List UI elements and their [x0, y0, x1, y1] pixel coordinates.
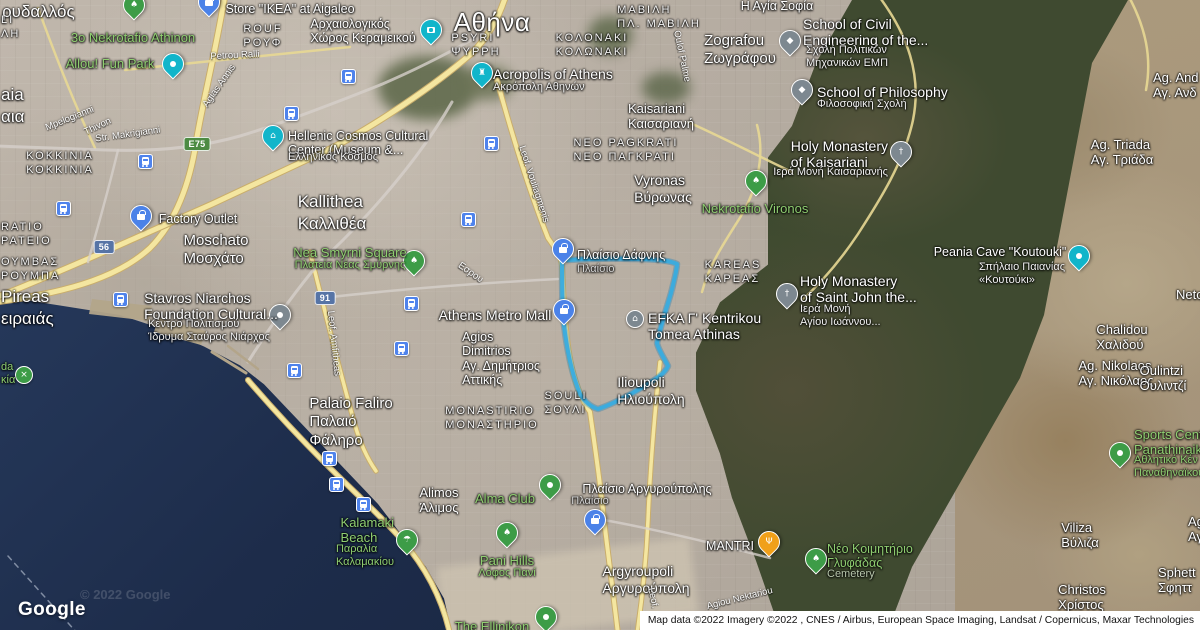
peania-cave-pin[interactable]	[1063, 240, 1094, 271]
pin-glyph-wrap: ◆	[792, 80, 812, 100]
label-the-ellinikon: The Ellinikon	[455, 620, 529, 630]
label-peania-cave-koutouki: Peania Cave "Koutouki"	[934, 245, 1067, 259]
pin-glyph-wrap: ⌂	[263, 126, 283, 146]
label-ag-triada: Ag. TriadaΑγ. Τριάδα	[1091, 137, 1153, 168]
label-line: Agiou Nektariou	[706, 586, 774, 613]
label-line: ΜΟΝΑΣΤΗΡΙΟ	[445, 418, 538, 432]
route-shield-e75: E75	[184, 137, 211, 151]
transit-station-icon[interactable]	[287, 363, 302, 378]
restaurant-icon: Ψ	[765, 538, 772, 547]
label-line: Λόφος Πανί	[478, 567, 535, 580]
camera-icon	[427, 27, 435, 33]
label-factory-outlet: Factory Outlet	[159, 212, 238, 226]
label-line: Βύλιζα	[1061, 535, 1099, 550]
google-logo[interactable]: Google	[18, 599, 86, 621]
label-line: Μηχανικών ΕΜΠ	[806, 57, 888, 70]
tree-icon: ♠	[812, 555, 820, 564]
train-icon	[408, 299, 415, 307]
dot-icon	[1076, 253, 1082, 259]
label-leof-vouliagmenis: Leof. Vouliagmenis	[515, 145, 550, 225]
bag-icon	[591, 518, 599, 525]
label-ag: AgΑγ	[1188, 514, 1200, 545]
label-line: Kalamaki	[341, 516, 394, 531]
label-line: Factory Outlet	[159, 212, 238, 226]
monastery-kaisariani-pin[interactable]: †	[885, 136, 916, 167]
label-line: Φιλοσοφική Σχολή	[817, 98, 907, 111]
label-line: Καλλιθέα	[298, 213, 367, 235]
label-line: Leof. Vouliagmenis	[515, 145, 550, 225]
transit-station-icon[interactable]	[484, 136, 499, 151]
museum-icon: ⌂	[270, 132, 276, 141]
dot-icon	[543, 614, 549, 620]
label-line: 3ο Nekrotafio Athinon	[71, 31, 195, 46]
label-line: Ilioupoli	[617, 374, 684, 391]
label-line: Ζωγράφου	[704, 50, 776, 68]
label-oulintzi: OulintziΟυλιντζί	[1140, 363, 1187, 394]
train-icon	[333, 480, 340, 488]
label-line: Παραλία	[336, 543, 394, 556]
label-line: Viliza	[1061, 520, 1099, 535]
label-line: Kallithea	[298, 191, 367, 213]
label-line: Σφηττ	[1158, 580, 1196, 595]
label-line: Ηλιούπολη	[617, 391, 684, 408]
label-kaisariani: KaisarianiΚαισαριανή	[628, 101, 694, 132]
bag-icon	[205, 0, 213, 6]
bag-icon	[560, 308, 568, 315]
label-line: Παλαιό	[309, 413, 392, 431]
label-line: Βύρωνας	[634, 189, 692, 206]
label-line: ΜΑΒΙΛΗ	[617, 3, 701, 17]
label-line: Athens Metro Mall	[439, 308, 552, 324]
label-vyronas: VyronasΒύρωνας	[634, 172, 692, 206]
pin-glyph-wrap: ◆	[780, 31, 800, 51]
label-line: Ουλιντζί	[1140, 378, 1187, 393]
label-line: ΠΛ. ΜΑΒΙΛΗ	[617, 17, 701, 31]
label-μαβιλη: ΜΑΒΙΛΗΠΛ. ΜΑΒΙΛΗ	[617, 3, 701, 32]
label-chalidou: ChalidouΧαλιδού	[1096, 322, 1147, 353]
label-line: «Κουτούκι»	[979, 274, 1065, 287]
label-athens-metro-mall: Athens Metro Mall	[439, 308, 552, 324]
label-rouf: ROUFΡΟΥΦ	[243, 22, 282, 51]
school-civil-engineering-pin[interactable]: ◆	[774, 25, 805, 56]
label-oulof-palme: Oulof Palme	[670, 30, 691, 83]
plaisio-dafnis-pin[interactable]	[547, 233, 578, 264]
label-line: Ακρόπολη Αθηνών	[493, 81, 585, 94]
label-line: Αγ. Δημήτριος	[462, 359, 540, 373]
label-line: Sports Cent	[1134, 428, 1200, 443]
label-nekrotafio-vironos: Nekrotafio Vironos	[702, 202, 809, 217]
label-alimos: AlimosΆλιμος	[419, 485, 458, 516]
pin-glyph-wrap: †	[777, 284, 797, 304]
label-line: Ελληνικός Κόσμος	[288, 151, 378, 164]
athens-metro-mall-pin[interactable]	[548, 294, 579, 325]
label-line: Zografou	[704, 32, 776, 50]
label-line: Dimitrios	[462, 344, 540, 358]
nekrotafio-athinon-pin[interactable]: ♠	[118, 0, 149, 21]
label-line: Ίδρυμα Σταύρος Νιάρχος	[148, 331, 270, 344]
label-νέο-κοιμητήριο: Νέο ΚοιμητήριοΓλυφάδας	[827, 542, 913, 571]
dot-icon	[170, 61, 176, 67]
label-line: Σπήλαιο Παιανίας	[979, 261, 1065, 274]
bag-icon	[137, 214, 145, 221]
label-line: Stavros Niarchos	[144, 291, 278, 307]
castle-icon: ♜	[478, 69, 486, 78]
tree-icon: ♠	[410, 257, 418, 266]
train-icon	[465, 215, 472, 223]
label-ελληνικός-κόσμος: Ελληνικός Κόσμος	[288, 151, 378, 164]
label-3ο-nekrotafio-athinon: 3ο Nekrotafio Athinon	[71, 31, 195, 46]
label-line: ΚΟΛΟΝΑΚΙ	[556, 31, 629, 45]
label-line: Alma Club	[475, 492, 535, 507]
transit-station-icon[interactable]	[394, 341, 409, 356]
label-line: Alimos	[419, 485, 458, 500]
train-icon	[345, 72, 352, 80]
label-line: Ag. And	[1153, 70, 1199, 85]
kalamaki-beach-pin[interactable]: ☂	[391, 524, 422, 555]
pin-glyph-wrap: ♠	[806, 549, 826, 569]
label-line: Chalidou	[1096, 322, 1147, 337]
pin-glyph-wrap	[1110, 443, 1130, 463]
label-line: Tomea Athinas	[648, 327, 761, 343]
ikea-store-pin[interactable]	[193, 0, 224, 18]
transit-station-icon[interactable]	[341, 69, 356, 84]
train-icon	[488, 139, 495, 147]
label-kallithea: KallitheaΚαλλιθέα	[298, 191, 367, 235]
train-icon	[142, 157, 149, 165]
label-neto: Neto	[1176, 287, 1200, 302]
transit-station-icon[interactable]	[356, 497, 371, 512]
label-line: αια	[1, 106, 24, 128]
train-icon	[326, 454, 333, 462]
label-κέντρο-πολιτισμού: Κέντρο ΠολιτισμούΊδρυμα Σταύρος Νιάρχος	[148, 318, 270, 343]
label-line: Πλαίσιο	[571, 495, 608, 508]
label-line: MANTRI	[706, 539, 754, 553]
label-νεο-pagkrati: ΝΕΟ PAGKRATIΝΕΟ ΠΑΓΚΡΑΤΙ	[574, 136, 679, 165]
label-line: Καισαριανή	[628, 116, 694, 131]
route-shield-91: 91	[315, 291, 336, 305]
label-line: Αγ. Ανδ	[1153, 85, 1199, 100]
bag-icon	[559, 247, 567, 254]
label-efka-γ-kentrikou: EFKA Γ' KentrikouTomea Athinas	[648, 311, 761, 343]
pin-glyph-wrap	[163, 54, 183, 74]
label-monastirio: MONASTIRIOΜΟΝΑΣΤΗΡΙΟ	[445, 404, 538, 433]
label-store-ikea-at-aigaleo: Store "IKEA" at Aigaleo	[225, 2, 354, 16]
label-ιερά-μονή-καισαριανής: Ιερά Μονή Καισαριανής	[773, 166, 888, 179]
label-αρχαιολογικός: ΑρχαιολογικόςΧώρος Κεραμεικού	[310, 17, 415, 46]
label-line: ΟΥΜΒΑΣ	[1, 255, 60, 269]
label-line: Κέντρο Πολιτισμού	[148, 318, 270, 331]
dot-icon	[547, 482, 553, 488]
label-line: Christos	[1058, 582, 1106, 597]
nekrotafio-vironos-pin[interactable]: ♠	[740, 165, 771, 196]
overlay-layer: ρυδαλλόςLIΛΗaiaαια3ο Nekrotafio AthinonA…	[0, 0, 1200, 630]
label-moschato: MoschatoΜοσχάτο	[183, 232, 248, 269]
label-line: Πλατεία Νέας Σμύρνης	[295, 259, 406, 272]
label-line: Agios	[462, 330, 540, 344]
grad-cap-icon: ◆	[799, 86, 806, 95]
factory-outlet-pin[interactable]	[125, 200, 156, 231]
pin-glyph-wrap	[131, 206, 151, 226]
label-line: ΚΟΚΚΙΝΙΑ	[26, 163, 94, 177]
label-line: Χαλιδού	[1096, 337, 1147, 352]
sports-center-panathinaikos-pin[interactable]	[1104, 437, 1135, 468]
label-line: Agias Annis	[201, 63, 238, 110]
label-line: Σχολή Πολιτικών	[806, 44, 888, 57]
label-line: Πλαίσιο Δάφνης	[577, 248, 665, 262]
train-icon	[117, 295, 124, 303]
pin-glyph-wrap: ♠	[124, 0, 144, 15]
label-ilioupoli: IlioupoliΗλιούπολη	[617, 374, 684, 408]
label-agiou-nektariou: Agiou Nektariou	[706, 586, 774, 613]
pin-glyph-wrap	[199, 0, 219, 12]
label-zografou: ZografouΖωγράφου	[704, 32, 776, 69]
label-line: ΛΗ	[1, 27, 20, 41]
tree-icon: ♠	[503, 529, 511, 538]
park-tools-icon[interactable]: ×	[15, 366, 33, 384]
label-line: Αρχαιολογικός	[310, 17, 415, 31]
label-ακρόπολη-αθηνών: Ακρόπολη Αθηνών	[493, 81, 585, 94]
label-line: Holy Monastery	[800, 274, 917, 290]
pin-glyph-wrap: ♠	[404, 251, 424, 271]
label-line: Αγ. Τριάδα	[1091, 152, 1153, 167]
label-line: ΝΕΟ PAGKRATI	[574, 136, 679, 150]
label-παραλία: ΠαραλίαΚαλαμακίου	[336, 543, 394, 568]
label-line: Ag	[1188, 514, 1200, 529]
label-line: Η Αγία Σοφία	[741, 0, 813, 13]
label-line: aia	[1, 84, 24, 106]
label-li: LIΛΗ	[1, 13, 20, 42]
label-agias-annis: Agias Annis	[201, 63, 238, 110]
label-line: Vyronas	[634, 172, 692, 189]
transit-station-icon[interactable]	[284, 106, 299, 121]
label-line: ΨΥΡΡΗ	[451, 45, 500, 59]
label-line: Peania Cave "Koutouki"	[934, 245, 1067, 259]
label-souli: SOULIΣΟΥΛΙ	[544, 389, 587, 418]
label-η-αγία-σοφία: Η Αγία Σοφία	[741, 0, 813, 13]
grad-cap-icon: ◆	[787, 37, 794, 46]
label-line: LI	[1, 13, 20, 27]
label-line: SOULI	[544, 389, 587, 403]
label-line: Νέο Κοιμητήριο	[827, 542, 913, 556]
transit-station-icon[interactable]	[461, 212, 476, 227]
label-line: ΡΟΥΜΠΑ	[1, 269, 60, 283]
pin-glyph-wrap	[585, 510, 605, 530]
pin-glyph-wrap	[554, 300, 574, 320]
attribution-bar: Map data ©2022 Imagery ©2022 , CNES / Ai…	[640, 611, 1200, 630]
label-line: ΣΟΥΛΙ	[544, 403, 587, 417]
label-φιλοσοφική-σχολή: Φιλοσοφική Σχολή	[817, 98, 907, 111]
label-πλαίσιο: Πλαίσιο	[571, 495, 608, 508]
label-line: MONASTIRIO	[445, 404, 538, 418]
label-line: Moschato	[183, 232, 248, 250]
label-line: Άλιμος	[419, 500, 458, 515]
label-line: Φάληρο	[309, 432, 392, 450]
tree-icon: ♠	[130, 0, 138, 9]
label-σχολή-πολιτικών: Σχολή ΠολιτικώνΜηχανικών ΕΜΠ	[806, 44, 888, 69]
label-line: Argyroupoli	[602, 563, 689, 580]
label-line: ΝΕΟ ΠΑΓΚΡΑΤΙ	[574, 150, 679, 164]
label-ιερά-μονή: Ιερά ΜονήΑγίου Ιωάννου...	[800, 303, 881, 328]
pin-glyph-wrap: ☂	[397, 530, 417, 550]
label-line: Εσρου	[455, 261, 484, 286]
label-line: ΡΑΤΕΙΟ	[1, 234, 52, 248]
label-σπήλαιο-παιανίας: Σπήλαιο Παιανίας«Κουτούκι»	[979, 261, 1065, 286]
label-line: Ιερά Μονή Καισαριανής	[773, 166, 888, 179]
label-mantri: MANTRI	[706, 539, 754, 553]
label-line: Πλαίσιο	[577, 263, 614, 276]
label-kalamaki: KalamakiBeach	[341, 516, 394, 546]
label-viliza: VilizaΒύλιζα	[1061, 520, 1099, 551]
label-alma-club: Alma Club	[475, 492, 535, 507]
train-icon	[360, 500, 367, 508]
train-icon	[60, 204, 67, 212]
label-line: Store "IKEA" at Aigaleo	[225, 2, 354, 16]
label-aia: aiaαια	[1, 84, 24, 128]
efka-building-icon[interactable]: ⌂	[626, 310, 644, 328]
alma-club-pin[interactable]	[534, 469, 565, 500]
label-line: da	[1, 361, 15, 374]
pin-glyph-wrap: ♜	[472, 63, 492, 83]
school-philosophy-pin[interactable]: ◆	[786, 74, 817, 105]
umbrella-icon: ☂	[403, 536, 411, 545]
label-line: Cemetery	[827, 568, 875, 581]
train-icon	[398, 344, 405, 352]
building-icon: ⌂	[632, 315, 638, 324]
the-ellinikon-pin[interactable]	[530, 601, 561, 630]
tools-icon: ×	[20, 371, 28, 380]
sea-watermark: © 2022 Google	[80, 587, 171, 602]
label-line: κία	[1, 374, 15, 387]
label-line: ΚΟΛΩΝΑΚΙ	[556, 45, 629, 59]
label-line: ΚΑΡΕΑΣ	[705, 272, 762, 286]
label-πλαίσιο-δάφνης: Πλαίσιο Δάφνης	[577, 248, 665, 262]
pin-glyph-wrap	[421, 20, 441, 40]
label-line: Neto	[1176, 287, 1200, 302]
label-line: Ιερά Μονή	[800, 303, 881, 316]
label-line: ΡΟΥΦ	[243, 36, 282, 50]
pin-glyph-wrap: Ψ	[759, 532, 779, 552]
label-εσρου: Εσρου	[455, 261, 484, 286]
label-line: Allou! Fun Park	[66, 57, 155, 72]
label-sphett: SphettΣφηττ	[1158, 565, 1196, 596]
label-palaio-faliro: Palaio FaliroΠαλαιόΦάληρο	[309, 395, 392, 450]
label-petrou-ralli: Petrou Ralli	[210, 50, 260, 63]
label-line: Sphett	[1158, 565, 1196, 580]
label-line: Αγ	[1188, 529, 1200, 544]
label-line: Αγίου Ιωάννου...	[800, 316, 881, 329]
label-holy-monastery: Holy Monasteryof Saint John the...	[800, 274, 917, 306]
pin-glyph-wrap: ♠	[746, 171, 766, 191]
train-icon	[288, 109, 295, 117]
pin-glyph-wrap: ♠	[497, 523, 517, 543]
tree-icon: ♠	[752, 177, 760, 186]
label-ratio: RATIOΡΑΤΕΙΟ	[1, 220, 52, 249]
label-line: Oulof Palme	[670, 30, 691, 83]
label-line: Hellenic Cosmos Cultural	[288, 129, 428, 143]
pin-glyph-wrap: †	[891, 142, 911, 162]
label-line: Holy Monastery	[791, 139, 888, 155]
label-cemetery: Cemetery	[827, 568, 875, 581]
mantri-restaurant-pin[interactable]: Ψ	[753, 526, 784, 557]
route-shield-56: 56	[94, 240, 115, 254]
label-line: Ag. Triada	[1091, 137, 1153, 152]
label-κοκκινια: ΚΟΚΚΙΝΙΑΚΟΚΚΙΝΙΑ	[26, 149, 94, 178]
kerameikos-site-pin[interactable]	[415, 14, 446, 45]
cross-icon: †	[785, 290, 790, 299]
label-line: Μοσχάτο	[183, 250, 248, 268]
label-κολονακι: ΚΟΛΟΝΑΚΙΚΟΛΩΝΑΚΙ	[556, 31, 629, 60]
label-leof-amfitheas: Leof. Amfitheas	[324, 310, 342, 376]
label-πλαίσιο: Πλαίσιο	[577, 263, 614, 276]
label-allou-fun-park: Allou! Fun Park	[66, 57, 155, 72]
label-agios: AgiosDimitriosΑγ. ΔημήτριοςΑττικής	[462, 330, 540, 387]
label-line: Leof. Amfitheas	[324, 310, 342, 376]
label-line: Αθλητικό Κέν	[1134, 454, 1200, 467]
label-line: Oulintzi	[1140, 363, 1187, 378]
label-line: Petrou Ralli	[210, 50, 260, 63]
label-line: EFKA Γ' Kentrikou	[648, 311, 761, 327]
pani-hills-pin[interactable]: ♠	[491, 517, 522, 548]
label-line: Χώρος Κεραμεικού	[310, 31, 415, 45]
transit-station-icon[interactable]	[56, 201, 71, 216]
plaisio-argyroupolis-pin[interactable]	[579, 504, 610, 535]
label-line: RATIO	[1, 220, 52, 234]
label-line: ειραιάς	[1, 308, 54, 330]
label-πλατεία-νέας-σμύρνης: Πλατεία Νέας Σμύρνης	[295, 259, 406, 272]
transit-station-icon[interactable]	[404, 296, 419, 311]
label-line: Nekrotafio Vironos	[702, 202, 809, 217]
label-line: Kaisariani	[628, 101, 694, 116]
label-line: School of Civil	[803, 17, 928, 33]
label-line: Παναθηναϊκού	[1134, 467, 1200, 480]
label-line: KAREAS	[705, 258, 762, 272]
label-ουμβας: ΟΥΜΒΑΣΡΟΥΜΠΑ	[1, 255, 60, 284]
transit-station-icon[interactable]	[138, 154, 153, 169]
label-line: Αττικής	[462, 373, 540, 387]
label-christos: ChristosΧρίστος	[1058, 582, 1106, 613]
label-line: The Ellinikon	[455, 620, 529, 630]
label-pireas: Pireasειραιάς	[1, 286, 54, 330]
transit-station-icon[interactable]	[322, 451, 337, 466]
pin-glyph-wrap	[1069, 246, 1089, 266]
dot-icon	[1117, 450, 1123, 456]
label-kareas: KAREASΚΑΡΕΑΣ	[705, 258, 762, 287]
label-λόφος-πανί: Λόφος Πανί	[478, 567, 535, 580]
label-line: Palaio Faliro	[309, 395, 392, 413]
train-icon	[291, 366, 298, 374]
transit-station-icon[interactable]	[113, 292, 128, 307]
label-αθλητικό-κέν: Αθλητικό ΚένΠαναθηναϊκού	[1134, 454, 1200, 479]
allou-fun-park-pin[interactable]	[157, 48, 188, 79]
label-line: PSYRI	[451, 31, 500, 45]
label-line: ΚΟΚΚΙΝΙΑ	[26, 149, 94, 163]
label-line: Pireas	[1, 286, 54, 308]
hellenic-cosmos-pin[interactable]: ⌂	[257, 120, 288, 151]
pin-glyph-wrap	[540, 475, 560, 495]
label-da: daκία	[1, 361, 15, 386]
cross-icon: †	[899, 148, 904, 157]
label-line: Καλαμακίου	[336, 556, 394, 569]
label-ag-and: Ag. AndΑγ. Ανδ	[1153, 70, 1199, 101]
label-line: ROUF	[243, 22, 282, 36]
pin-glyph-wrap	[553, 239, 573, 259]
transit-station-icon[interactable]	[329, 477, 344, 492]
label-psyri: PSYRIΨΥΡΡΗ	[451, 31, 500, 60]
monastery-saint-john-pin[interactable]: †	[771, 278, 802, 309]
map-canvas[interactable]: ρυδαλλόςLIΛΗaiaαια3ο Nekrotafio AthinonA…	[0, 0, 1200, 630]
pin-glyph-wrap	[536, 607, 556, 627]
